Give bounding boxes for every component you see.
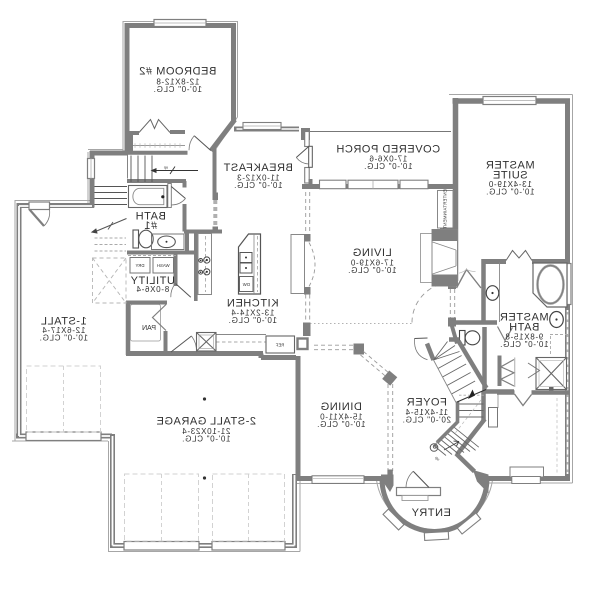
svg-text:BREAKFAST: BREAKFAST [223, 162, 293, 174]
svg-text:REF: REF [275, 343, 284, 348]
svg-text:up: up [163, 165, 168, 170]
svg-text:ENTRY: ENTRY [411, 507, 451, 519]
svg-text:10'-0" CLG.: 10'-0" CLG. [364, 162, 413, 171]
svg-text:10'-0" CLG.: 10'-0" CLG. [39, 334, 88, 343]
svg-text:8-0X6-4: 8-0X6-4 [136, 285, 169, 294]
svg-text:10'-0" CLG.: 10'-0" CLG. [182, 435, 231, 444]
svg-text:ENTERTAINMENT: ENTERTAINMENT [442, 189, 447, 229]
svg-text:FOYER: FOYER [406, 397, 447, 409]
svg-text:DINING: DINING [320, 401, 362, 413]
svg-text:WASH: WASH [157, 263, 170, 268]
svg-text:10'-0" CLG.: 10'-0" CLG. [486, 188, 535, 197]
svg-text:PAN: PAN [142, 325, 156, 332]
svg-text:20'-0" CLG.: 20'-0" CLG. [402, 416, 451, 425]
svg-text:10'-0" CLG.: 10'-0" CLG. [348, 266, 397, 275]
svg-text:10'-0" CLG.: 10'-0" CLG. [500, 340, 549, 349]
svg-text:DRY: DRY [135, 263, 144, 268]
svg-text:DW: DW [242, 282, 250, 287]
svg-text:10'-0" CLG.: 10'-0" CLG. [228, 316, 277, 325]
svg-text:BEDROOM #2: BEDROOM #2 [139, 66, 217, 78]
svg-text:10'-0" CLG.: 10'-0" CLG. [153, 85, 202, 94]
svg-text:10'-0" CLG.: 10'-0" CLG. [234, 181, 283, 190]
svg-text:10'-0" CLG.: 10'-0" CLG. [317, 420, 366, 429]
svg-text:LIVING: LIVING [352, 247, 391, 259]
svg-text:2-STALL GARAGE: 2-STALL GARAGE [156, 416, 256, 428]
svg-text:#1: #1 [144, 220, 157, 232]
